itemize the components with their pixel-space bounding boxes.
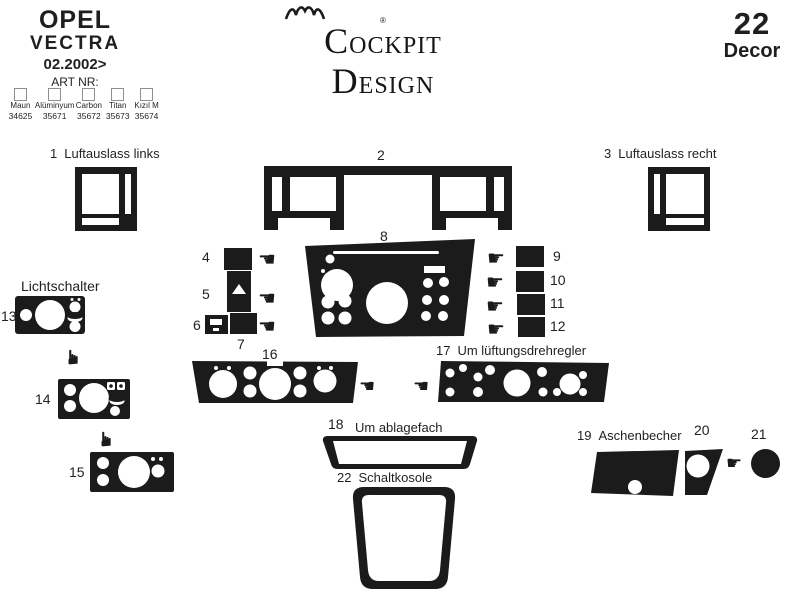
pointer-hand-up-icon: ☛ <box>63 348 83 366</box>
color-name: Titan <box>103 102 132 111</box>
part-20-number: 20 <box>694 422 710 438</box>
pointer-hand-icon: ☛ <box>726 455 742 473</box>
model-name: VECTRA <box>0 33 150 55</box>
cockpit-design-logo: ® COCKPITDESIGN <box>283 4 483 101</box>
color-swatch-checkbox <box>14 88 27 101</box>
part-22-text: Schaltkosole <box>358 470 432 485</box>
part-13-diagram <box>15 296 85 334</box>
color-option-kizil: Kızıl M 35674 <box>132 88 161 121</box>
part-3-diagram <box>648 167 710 231</box>
color-options: Maun 34625 Alüminyum 35671 Carbon 35672 … <box>6 88 161 121</box>
part-15-number: 15 <box>69 464 85 480</box>
part-14-number: 14 <box>35 391 51 407</box>
part-1-number: 1 <box>50 146 57 161</box>
color-swatch-checkbox <box>82 88 95 101</box>
part-11-diagram <box>517 294 545 315</box>
part-21-diagram <box>751 449 780 478</box>
pointer-hand-icon: ☛ <box>487 248 505 268</box>
color-option-aluminyum: Alüminyum 35671 <box>35 88 75 121</box>
part-13-label: Lichtschalter <box>21 278 100 294</box>
part-22-diagram <box>351 486 457 590</box>
part-5-diagram <box>227 271 251 312</box>
part-9-diagram <box>516 246 544 267</box>
color-name: Kızıl M <box>132 102 161 111</box>
part-14-diagram <box>58 379 130 419</box>
part-1-text: Luftauslass links <box>64 146 159 161</box>
part-18-label: Um ablagefach <box>355 420 442 435</box>
part-18-diagram <box>321 435 479 470</box>
part-8-diagram <box>303 236 481 338</box>
color-option-carbon: Carbon 35672 <box>74 88 103 121</box>
pointer-hand-icon: ☚ <box>258 288 276 308</box>
part-12-number: 12 <box>550 318 566 334</box>
part-21-number: 21 <box>751 426 767 442</box>
part-22-number: 22 <box>337 470 351 485</box>
vehicle-info: OPEL VECTRA 02.2002> ART NR: <box>0 8 150 91</box>
part-19-diagram <box>591 449 685 497</box>
color-swatch-checkbox <box>111 88 124 101</box>
catalog-sheet: OPEL VECTRA 02.2002> ART NR: Maun 34625 … <box>0 0 800 598</box>
part-2-diagram <box>264 166 512 230</box>
color-name: Alüminyum <box>35 102 75 111</box>
part-10-number: 10 <box>550 272 566 288</box>
pointer-hand-icon: ☛ <box>487 319 505 339</box>
decor-count: 22 <box>712 8 792 39</box>
pointer-hand-icon: ☛ <box>486 272 504 292</box>
pointer-hand-up-icon: ☛ <box>96 430 116 448</box>
color-option-titan: Titan 35673 <box>103 88 132 121</box>
part-3-label: 3Luftauslass recht <box>604 146 717 161</box>
part-3-text: Luftauslass recht <box>618 146 716 161</box>
part-6-diagram <box>205 315 228 334</box>
part-7-diagram <box>230 313 257 334</box>
part-3-number: 3 <box>604 146 611 161</box>
pointer-hand-icon: ☚ <box>413 378 429 396</box>
logo-text-cockpit: COCKPIT <box>324 22 442 62</box>
part-19-number: 19 <box>577 428 591 443</box>
part-2-number: 2 <box>377 147 385 163</box>
part-4-number: 4 <box>202 249 210 265</box>
logo-text-design: DESIGN <box>332 62 435 102</box>
part-11-number: 11 <box>550 295 565 311</box>
color-code: 35671 <box>35 111 75 121</box>
crown-icon <box>283 4 329 21</box>
decor-count-block: 22 Decor <box>712 8 792 61</box>
pointer-hand-icon: ☚ <box>258 316 276 336</box>
color-name: Maun <box>6 102 35 111</box>
brand-name: OPEL <box>0 8 150 33</box>
part-19-label: 19Aschenbecher <box>577 428 682 443</box>
part-17-label: 17Um lüftungsdrehregler <box>436 343 586 358</box>
color-code: 35674 <box>132 111 161 121</box>
pointer-hand-icon: ☚ <box>359 378 375 396</box>
part-17-diagram <box>437 360 609 403</box>
part-12-diagram <box>518 317 545 337</box>
part-4-diagram <box>224 248 252 270</box>
part-15-diagram <box>90 452 174 492</box>
part-7-number: 7 <box>237 336 245 352</box>
color-code: 35673 <box>103 111 132 121</box>
pointer-hand-icon: ☛ <box>486 296 504 316</box>
part-9-number: 9 <box>553 248 561 264</box>
part-20-diagram <box>685 448 729 496</box>
part-10-diagram <box>516 271 544 292</box>
part-1-diagram <box>75 167 137 231</box>
part-5-number: 5 <box>202 286 210 302</box>
color-name: Carbon <box>74 102 103 111</box>
color-swatch-checkbox <box>140 88 153 101</box>
part-17-number: 17 <box>436 343 450 358</box>
part-22-label: 22Schaltkosole <box>337 470 432 485</box>
decor-label: Decor <box>712 41 792 61</box>
part-19-text: Aschenbecher <box>598 428 681 443</box>
part-18-number: 18 <box>328 416 344 432</box>
color-option-maun: Maun 34625 <box>6 88 35 121</box>
color-code: 34625 <box>6 111 35 121</box>
pointer-hand-icon: ☚ <box>258 249 276 269</box>
part-17-text: Um lüftungsdrehregler <box>457 343 586 358</box>
color-code: 35672 <box>74 111 103 121</box>
part-6-number: 6 <box>193 317 201 333</box>
part-16-diagram <box>187 360 359 404</box>
model-date: 02.2002> <box>0 55 150 75</box>
color-swatch-checkbox <box>48 88 61 101</box>
part-1-label: 1Luftauslass links <box>50 146 160 161</box>
